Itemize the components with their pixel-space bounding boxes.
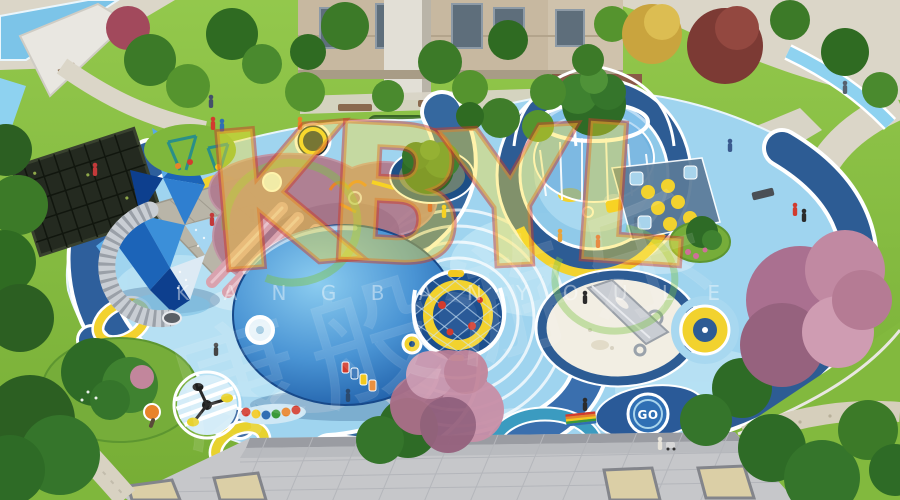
pedestrian [793,203,798,216]
pedestrian [93,163,98,176]
pedestrian [802,209,807,222]
pedestrian [843,81,848,94]
pedestrian [583,398,588,411]
pedestrian [728,139,733,152]
slide-exit [163,312,181,324]
render-canvas: GO [0,0,900,500]
mushroom-table [144,404,160,420]
playground-aerial-render: GO [0,0,900,500]
go-label: GO [637,408,658,422]
pink-shrub [130,365,154,389]
